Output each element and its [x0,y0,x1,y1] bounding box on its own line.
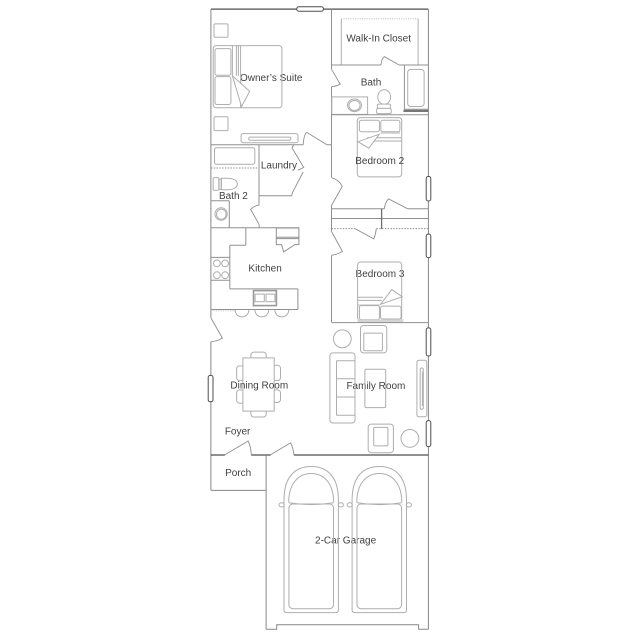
svg-text:Foyer: Foyer [225,427,251,438]
svg-text:Kitchen: Kitchen [248,263,281,274]
svg-text:Bath: Bath [361,78,382,89]
svg-text:Bedroom 3: Bedroom 3 [356,269,405,280]
svg-text:Walk-In Closet: Walk-In Closet [346,34,411,45]
svg-text:2-Car Garage: 2-Car Garage [315,535,377,546]
svg-text:Owner’s Suite: Owner’s Suite [240,73,303,84]
svg-text:Laundry: Laundry [261,160,297,171]
svg-text:Porch: Porch [225,468,251,479]
svg-text:Bedroom 2: Bedroom 2 [355,156,404,167]
svg-text:Dining Room: Dining Room [230,381,288,392]
